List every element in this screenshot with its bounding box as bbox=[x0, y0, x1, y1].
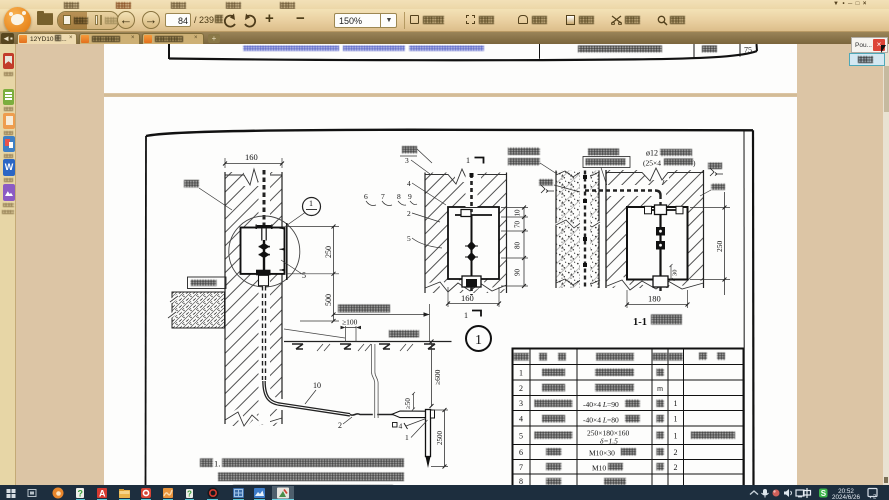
svg-text:A: A bbox=[99, 489, 106, 499]
svg-text:5: 5 bbox=[302, 271, 306, 280]
svg-text:1: 1 bbox=[466, 156, 470, 165]
svg-text:250: 250 bbox=[715, 241, 724, 253]
svg-text:4: 4 bbox=[399, 422, 403, 431]
svg-text:2500: 2500 bbox=[436, 431, 444, 446]
svg-text:S: S bbox=[821, 489, 827, 498]
svg-text:1.: 1. bbox=[214, 459, 220, 469]
svg-text:1: 1 bbox=[405, 433, 409, 442]
svg-text:1: 1 bbox=[309, 199, 313, 208]
svg-text:m: m bbox=[657, 386, 663, 393]
svg-text:30: 30 bbox=[672, 270, 679, 277]
svg-text:3: 3 bbox=[405, 156, 409, 165]
svg-text:2: 2 bbox=[407, 209, 411, 218]
svg-text:(25×4: (25×4 bbox=[643, 159, 661, 168]
svg-text:75: 75 bbox=[744, 46, 752, 55]
svg-text:ø12: ø12 bbox=[646, 149, 658, 158]
svg-text:2: 2 bbox=[519, 384, 523, 393]
svg-text:7: 7 bbox=[519, 463, 523, 472]
svg-text:1: 1 bbox=[519, 369, 523, 378]
svg-text:4: 4 bbox=[519, 415, 523, 424]
svg-text:6: 6 bbox=[364, 192, 368, 201]
svg-text:250: 250 bbox=[324, 246, 333, 258]
svg-text:7: 7 bbox=[381, 192, 385, 201]
svg-text:1: 1 bbox=[674, 432, 678, 441]
svg-text:90: 90 bbox=[514, 269, 522, 277]
svg-text:1: 1 bbox=[674, 415, 678, 424]
svg-text:160: 160 bbox=[461, 293, 474, 303]
svg-text:1: 1 bbox=[674, 399, 678, 408]
svg-text:500: 500 bbox=[324, 294, 333, 306]
svg-text:-40×4 L=90: -40×4 L=90 bbox=[583, 400, 619, 409]
svg-text:6: 6 bbox=[519, 448, 523, 457]
svg-text:10: 10 bbox=[514, 209, 522, 217]
svg-text:2: 2 bbox=[674, 463, 678, 472]
svg-text:10: 10 bbox=[313, 381, 321, 390]
svg-text:1: 1 bbox=[464, 311, 468, 320]
svg-text:≥50: ≥50 bbox=[404, 398, 412, 409]
svg-text:2024/6/26: 2024/6/26 bbox=[832, 494, 861, 500]
svg-text:3: 3 bbox=[519, 399, 523, 408]
svg-text:1-1: 1-1 bbox=[633, 317, 647, 328]
svg-text:9: 9 bbox=[408, 192, 412, 201]
svg-text:1: 1 bbox=[475, 333, 482, 348]
svg-text:M10×30: M10×30 bbox=[589, 449, 615, 458]
svg-text:2: 2 bbox=[338, 421, 342, 430]
svg-text:160: 160 bbox=[245, 152, 258, 162]
svg-text:?: ? bbox=[78, 489, 84, 499]
svg-text:2: 2 bbox=[674, 448, 678, 457]
svg-text:70: 70 bbox=[514, 221, 522, 229]
svg-text:M10: M10 bbox=[592, 464, 606, 473]
svg-text:≥100: ≥100 bbox=[342, 318, 358, 327]
svg-text:≥600: ≥600 bbox=[433, 369, 442, 385]
svg-text:5: 5 bbox=[407, 234, 411, 243]
svg-text:8: 8 bbox=[397, 192, 401, 201]
svg-text:?: ? bbox=[187, 490, 192, 499]
svg-text:5: 5 bbox=[519, 432, 523, 441]
svg-text:180: 180 bbox=[648, 294, 661, 304]
svg-text:δ=1.5: δ=1.5 bbox=[600, 437, 618, 446]
svg-text:80: 80 bbox=[514, 242, 522, 250]
svg-text:4: 4 bbox=[407, 179, 411, 188]
svg-text:-40×4 L=80: -40×4 L=80 bbox=[583, 416, 619, 425]
